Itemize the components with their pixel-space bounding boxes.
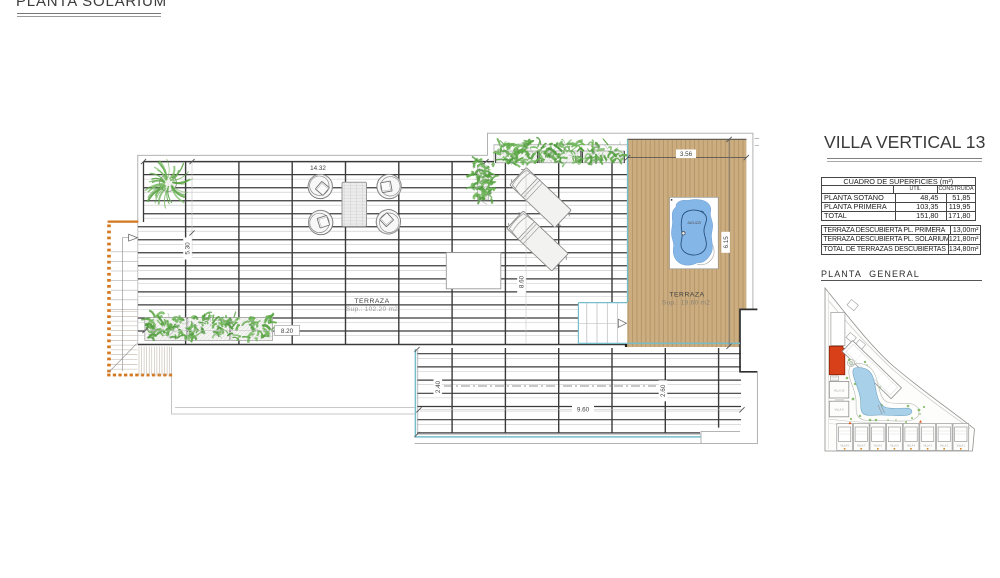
- svg-text:VILLA 9: VILLA 9: [834, 408, 844, 412]
- svg-text:5.30: 5.30: [185, 242, 192, 255]
- svg-text:VILLA 10: VILLA 10: [834, 389, 845, 393]
- svg-text:2.60: 2.60: [660, 384, 667, 397]
- svg-text:VILLA 8: VILLA 8: [840, 445, 849, 448]
- svg-text:Sup.: 102.20 m2: Sup.: 102.20 m2: [346, 306, 398, 313]
- svg-text:VILLA 6: VILLA 6: [874, 445, 883, 448]
- svg-text:14.32: 14.32: [310, 165, 326, 172]
- svg-text:TERRAZA: TERRAZA: [669, 292, 704, 299]
- svg-text:JACUZZI: JACUZZI: [687, 221, 701, 225]
- svg-text:8.20: 8.20: [281, 328, 294, 335]
- svg-text:2.40: 2.40: [435, 380, 442, 393]
- svg-text:VILLA 2: VILLA 2: [940, 445, 949, 448]
- svg-text:VILLA 4: VILLA 4: [907, 445, 916, 448]
- svg-text:VILLA 3: VILLA 3: [923, 445, 932, 448]
- svg-text:VILLA 5: VILLA 5: [890, 445, 899, 448]
- svg-text:3.56: 3.56: [680, 151, 693, 158]
- svg-text:8.60: 8.60: [519, 275, 526, 288]
- svg-text:VILLA 7: VILLA 7: [857, 445, 866, 448]
- svg-text:VILLA 1: VILLA 1: [957, 445, 966, 448]
- svg-text:Sup.: 19.60 m2: Sup.: 19.60 m2: [662, 300, 710, 307]
- svg-text:9.60: 9.60: [577, 407, 590, 414]
- svg-text:TERRAZA: TERRAZA: [354, 298, 389, 305]
- svg-text:6.15: 6.15: [723, 236, 730, 249]
